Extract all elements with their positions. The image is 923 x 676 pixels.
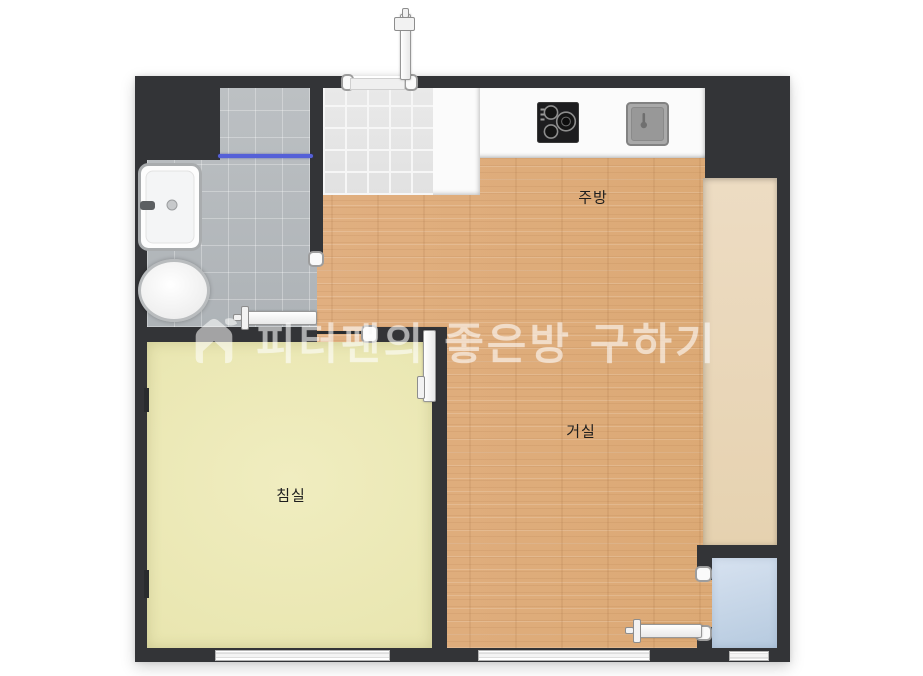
wall-top-right-segment — [405, 76, 705, 88]
window-utility — [729, 651, 769, 661]
sliding-door-handle-stem — [233, 314, 242, 321]
door-jamb — [361, 325, 378, 343]
wall-stub — [144, 570, 149, 598]
sliding-door-handle-stem — [625, 627, 634, 634]
wall-right — [777, 76, 790, 662]
living-room-label: 거실 — [566, 421, 596, 442]
bedroom-doorway-threshold — [317, 331, 363, 334]
entrance-threshold — [350, 78, 405, 90]
floorplan-image: 주방 거실 침실 피터팬의 좋은방 구하기 — [0, 0, 923, 676]
wall-bedroom-top-a — [147, 327, 317, 342]
wall-block-bathroom-top-left — [135, 83, 220, 160]
bedroom-door-handle — [417, 376, 425, 399]
shower-partition-rail — [218, 154, 313, 158]
door-jamb — [695, 566, 712, 582]
wall-balcony-bottom — [697, 545, 790, 558]
cooktop-icon — [537, 102, 579, 143]
wall-bathroom-right — [310, 88, 323, 258]
kitchen-sink-icon — [626, 102, 669, 146]
room-entry — [323, 88, 433, 195]
entrance-door-handle — [394, 17, 415, 31]
kitchen-label: 주방 — [578, 187, 608, 208]
kitchen-counter-leg — [433, 88, 480, 195]
toilet-icon — [138, 259, 210, 322]
washbasin-icon — [138, 163, 202, 251]
room-balcony — [703, 178, 777, 545]
utility-sliding-door — [638, 624, 702, 638]
wall-stub — [144, 388, 149, 412]
entrance-door-handle-cap — [402, 8, 409, 18]
room-utility — [712, 558, 777, 648]
sliding-door-handle — [241, 306, 249, 330]
bedroom-label: 침실 — [276, 485, 306, 506]
window-living — [478, 650, 650, 661]
bedroom-sliding-door — [246, 311, 317, 325]
sliding-door-handle — [633, 619, 641, 643]
door-jamb — [308, 251, 324, 267]
window-bedroom — [215, 650, 390, 661]
